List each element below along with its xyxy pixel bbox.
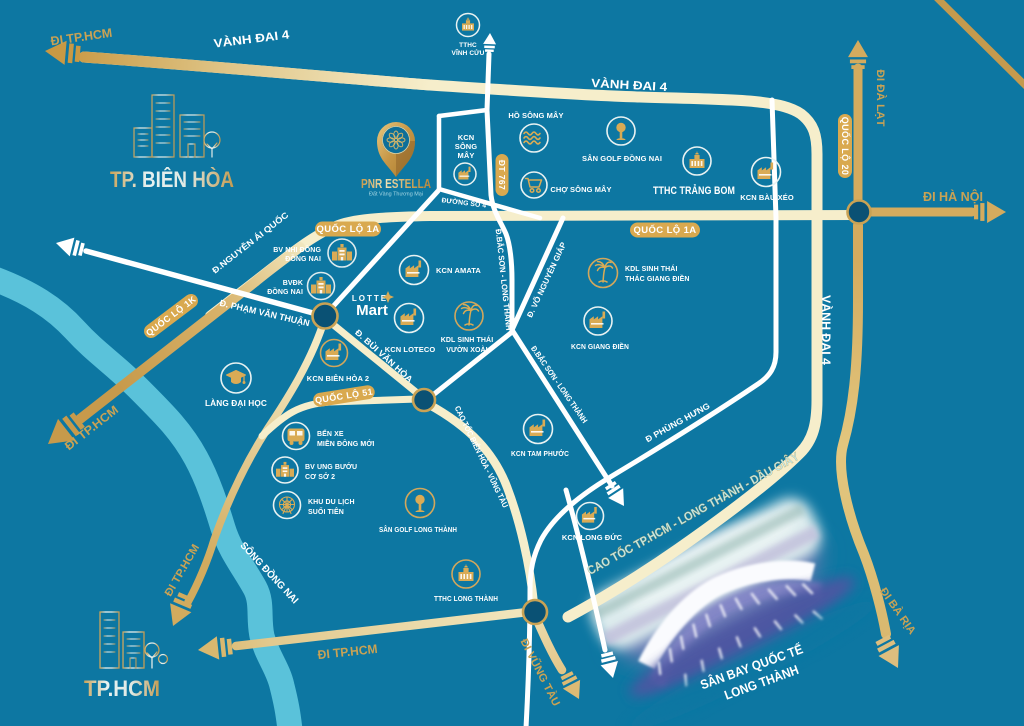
svg-text:VƯỜN XOÀI: VƯỜN XOÀI — [446, 345, 487, 354]
svg-text:KCN AMATA: KCN AMATA — [436, 266, 481, 275]
svg-text:QUỐC LỘ 1A: QUỐC LỘ 1A — [316, 223, 379, 235]
svg-text:VĨNH CỬU: VĨNH CỬU — [452, 48, 485, 57]
svg-text:SÂN GOLF LONG THÀNH: SÂN GOLF LONG THÀNH — [379, 525, 457, 534]
svg-text:KHU DU LỊCH: KHU DU LỊCH — [308, 499, 355, 506]
svg-text:ĐI HÀ NỘI: ĐI HÀ NỘI — [923, 189, 983, 204]
svg-text:ĐT 767: ĐT 767 — [497, 160, 507, 190]
svg-text:SÔNG: SÔNG — [455, 142, 478, 151]
svg-text:ĐI ĐÀ LẠT: ĐI ĐÀ LẠT — [874, 70, 887, 127]
svg-text:KCN GIANG ĐIỀN: KCN GIANG ĐIỀN — [571, 341, 629, 351]
svg-text:SÂN GOLF ĐỒNG NAI: SÂN GOLF ĐỒNG NAI — [582, 153, 662, 163]
svg-text:CƠ SỞ 2: CƠ SỞ 2 — [305, 472, 335, 481]
svg-text:PNR ESTELLA: PNR ESTELLA — [361, 177, 431, 191]
svg-text:HỒ SÔNG MÂY: HỒ SÔNG MÂY — [508, 110, 563, 120]
svg-text:KCN TAM PHƯỚC: KCN TAM PHƯỚC — [511, 449, 569, 458]
svg-text:TTHC LONG THÀNH: TTHC LONG THÀNH — [434, 594, 498, 603]
svg-text:VÀNH ĐAI 4: VÀNH ĐAI 4 — [819, 295, 832, 366]
svg-text:CHỢ SÔNG MÂY: CHỢ SÔNG MÂY — [550, 185, 611, 194]
svg-text:TP.HCM: TP.HCM — [84, 676, 160, 701]
svg-text:Đất Vàng Thương Mại: Đất Vàng Thương Mại — [369, 192, 423, 198]
svg-text:TTHC TRẢNG BOM: TTHC TRẢNG BOM — [653, 184, 735, 197]
svg-text:KCN BIÊN HÒA 2: KCN BIÊN HÒA 2 — [307, 374, 369, 383]
svg-text:KDL SINH THÁI: KDL SINH THÁI — [441, 335, 494, 344]
svg-text:LÀNG ĐẠI HỌC: LÀNG ĐẠI HỌC — [205, 399, 267, 408]
svg-text:TTHC: TTHC — [459, 42, 477, 49]
svg-text:Mart: Mart — [356, 302, 388, 319]
svg-text:QUỐC LỘ 20: QUỐC LỘ 20 — [840, 117, 851, 176]
svg-text:KCN LOTECO: KCN LOTECO — [385, 345, 436, 354]
svg-text:QUỐC LỘ 1A: QUỐC LỘ 1A — [633, 224, 696, 236]
svg-text:TP. BIÊN HÒA: TP. BIÊN HÒA — [110, 167, 234, 192]
svg-text:KCN LONG ĐỨC: KCN LONG ĐỨC — [562, 533, 623, 542]
svg-text:KDL SINH THÁI: KDL SINH THÁI — [625, 264, 678, 273]
svg-text:BVĐK: BVĐK — [283, 280, 303, 287]
svg-text:MÂY: MÂY — [458, 151, 475, 160]
svg-text:BV UNG BƯỚU: BV UNG BƯỚU — [305, 462, 357, 471]
svg-text:KCN: KCN — [458, 133, 475, 142]
svg-text:KCN BÀU XÉO: KCN BÀU XÉO — [740, 193, 794, 202]
